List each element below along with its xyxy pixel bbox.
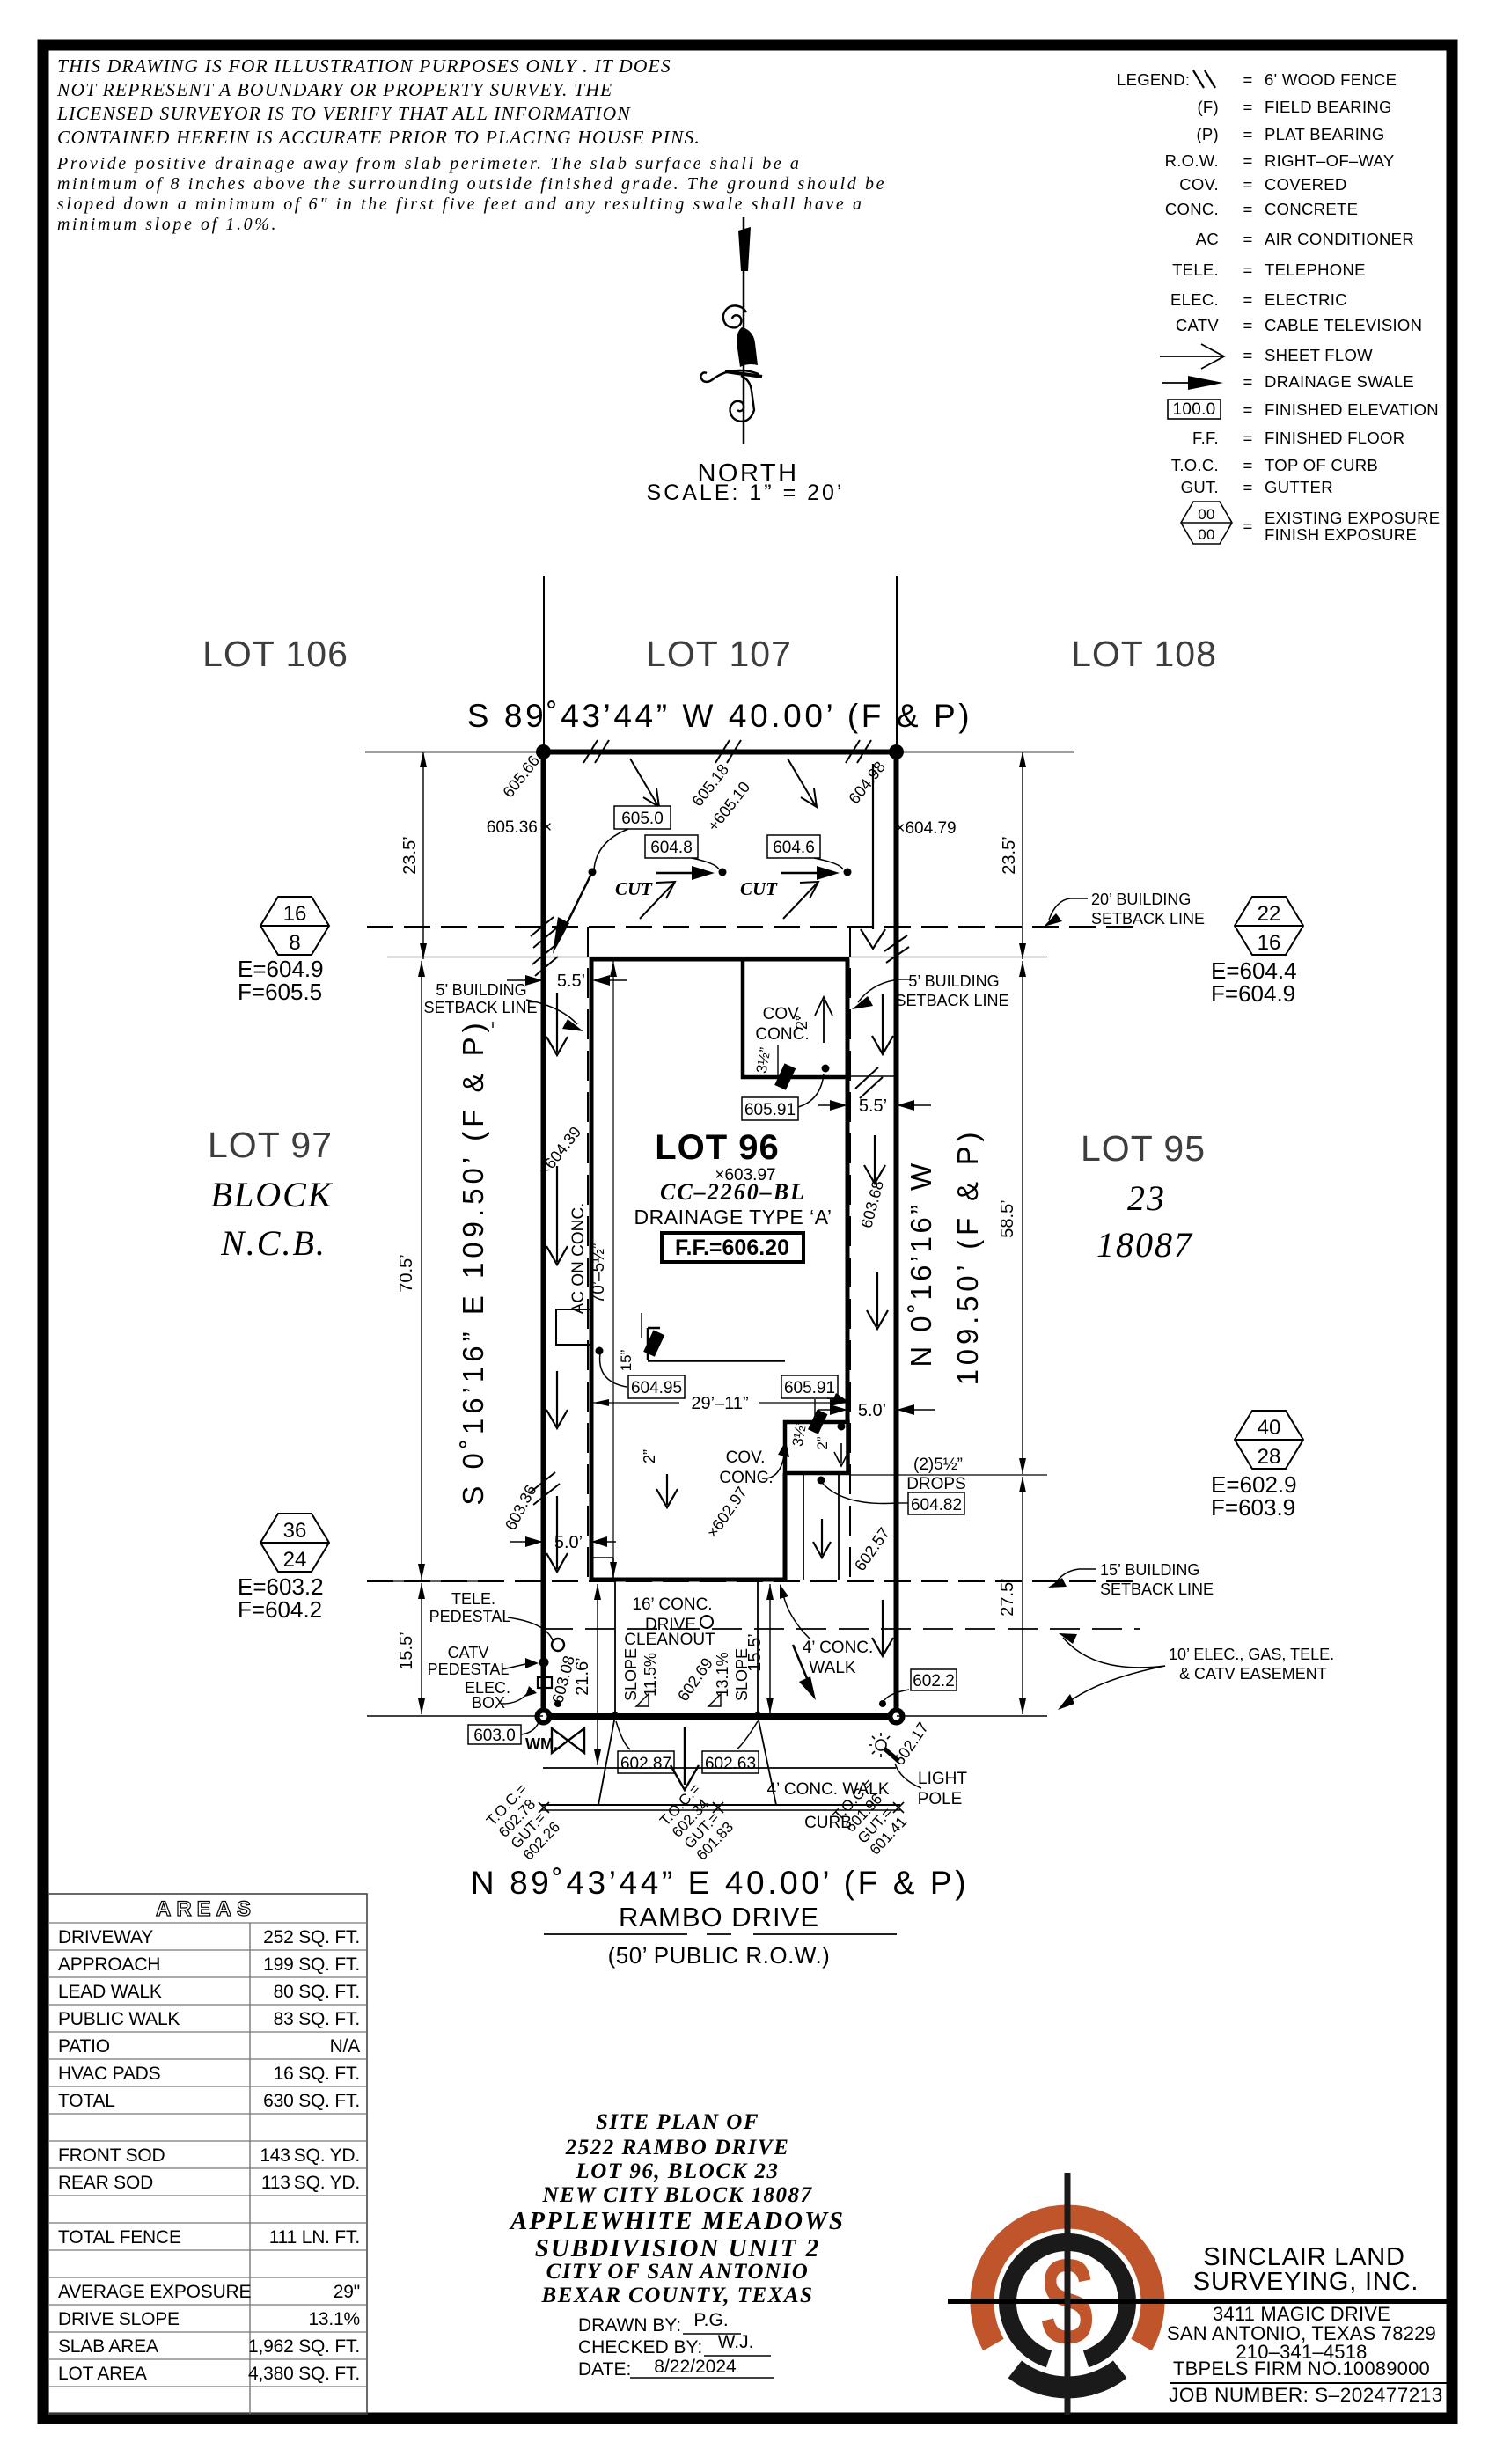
svg-text:FINISH EXPOSURE: FINISH EXPOSURE [1265,525,1417,544]
svg-text:LOT 107: LOT 107 [646,634,792,674]
svg-text:CATV: CATV [448,1644,489,1661]
svg-text:=: = [1243,70,1252,89]
svg-text:PEDESTAL: PEDESTAL [428,1661,510,1678]
svg-text:S 0˚16’16” E 109.50’ (F & P): S 0˚16’16” E 109.50’ (F & P) [457,1018,489,1505]
svg-text:COVERED: COVERED [1265,175,1347,194]
svg-text:70’–5½”: 70’–5½” [590,1243,608,1304]
svg-text:CONCRETE: CONCRETE [1265,200,1358,218]
svg-text:23.5’: 23.5’ [1000,836,1019,874]
svg-text:REAR SOD: REAR SOD [58,2173,153,2193]
svg-text:TOP OF CURB: TOP OF CURB [1265,456,1378,474]
svg-text:PUBLIC WALK: PUBLIC WALK [58,2009,180,2029]
svg-text:2522 RAMBO DRIVE: 2522 RAMBO DRIVE [565,2136,790,2160]
svg-text:R.O.W.: R.O.W. [1165,151,1219,170]
svg-text:F=604.2: F=604.2 [238,1596,322,1623]
svg-text:COV.: COV. [726,1448,766,1467]
svg-text:143 SQ. YD.: 143 SQ. YD. [260,2145,360,2166]
svg-text:NEW CITY BLOCK 18087: NEW CITY BLOCK 18087 [541,2183,812,2207]
svg-text:20’ BUILDING: 20’ BUILDING [1091,891,1191,908]
svg-text:LIGHT: LIGHT [918,1770,967,1788]
svg-text:F=604.9: F=604.9 [1211,980,1295,1007]
svg-text:AREAS: AREAS [156,1897,256,1921]
svg-text:16’ CONC.: 16’ CONC. [632,1595,712,1614]
svg-text:2”: 2” [814,1436,831,1449]
svg-text:COV.: COV. [1179,175,1219,194]
svg-text:APPROACH: APPROACH [58,1954,160,1975]
svg-text:605.91: 605.91 [784,1379,835,1397]
svg-text:602.2: 602.2 [913,1672,955,1690]
svg-text:40: 40 [1258,1416,1281,1440]
svg-text:GUT.: GUT. [1181,478,1219,496]
svg-text:1,962 SQ. FT.: 1,962 SQ. FT. [248,2336,360,2357]
svg-text:27.5’: 27.5’ [998,1578,1017,1616]
svg-text:GUTTER: GUTTER [1265,478,1333,496]
svg-text:SETBACK LINE: SETBACK LINE [1100,1580,1214,1598]
svg-text:605.0: 605.0 [621,810,664,828]
svg-text:FINISHED ELEVATION: FINISHED ELEVATION [1265,400,1439,419]
svg-text:SETBACK LINE: SETBACK LINE [423,999,537,1016]
svg-text:LOT 108: LOT 108 [1071,634,1217,674]
svg-text:minimum of 8 inches above the: minimum of 8 inches above the surroundin… [57,174,886,194]
svg-text:EXISTING EXPOSURE: EXISTING EXPOSURE [1265,509,1440,527]
svg-text:CC–2260–BL: CC–2260–BL [660,1179,806,1205]
svg-text:PEDESTAL: PEDESTAL [429,1608,511,1625]
svg-text:BOX: BOX [472,1694,505,1712]
svg-text:AVERAGE EXPOSURE: AVERAGE EXPOSURE [58,2282,252,2302]
svg-text:22: 22 [1258,902,1281,926]
svg-text:603.0: 603.0 [473,1727,516,1745]
svg-text:604.6: 604.6 [773,839,815,857]
svg-text:HVAC PADS: HVAC PADS [58,2064,161,2084]
svg-text:TELEPHONE: TELEPHONE [1265,260,1366,279]
svg-text:SCALE: 1” = 20’: SCALE: 1” = 20’ [647,480,845,505]
svg-text:=: = [1243,290,1252,309]
svg-text:AC: AC [1196,230,1219,248]
svg-text:WALK: WALK [809,1659,855,1677]
svg-text:N 0˚16’16” W: N 0˚16’16” W [905,1160,937,1367]
svg-text:00: 00 [1198,506,1215,523]
svg-text:LEAD WALK: LEAD WALK [58,1982,162,2002]
svg-text:=: = [1243,346,1252,364]
svg-text:CHECKED BY:: CHECKED BY: [578,2337,702,2358]
svg-text:LOT 95: LOT 95 [1081,1128,1206,1169]
svg-text:=: = [1243,200,1252,218]
svg-text:N 89˚43’44” E 40.00’ (F & P): N 89˚43’44” E 40.00’ (F & P) [471,1865,969,1901]
svg-text:FINISHED FLOOR: FINISHED FLOOR [1265,429,1404,447]
svg-text:DRIVE SLOPE: DRIVE SLOPE [58,2309,180,2329]
svg-text:LICENSED SURVEYOR IS TO VERIFY: LICENSED SURVEYOR IS TO VERIFY THAT ALL … [56,103,631,124]
svg-text:=: = [1243,175,1252,194]
svg-text:PATIO: PATIO [58,2036,110,2057]
svg-text:LOT AREA: LOT AREA [58,2364,147,2384]
svg-text:CABLE TELEVISION: CABLE TELEVISION [1265,316,1422,334]
svg-text:SITE PLAN OF: SITE PLAN OF [596,2110,759,2134]
svg-text:2”: 2” [641,1449,658,1463]
svg-text:5.0’: 5.0’ [858,1401,886,1420]
svg-text:11.5%: 11.5% [642,1653,659,1697]
svg-text:4,380 SQ. FT.: 4,380 SQ. FT. [248,2364,360,2384]
svg-text:CONC.: CONC. [1165,200,1219,218]
svg-text:minimum slope of 1.0%.: minimum slope of 1.0%. [57,215,278,234]
svg-text:F.F.=606.20: F.F.=606.20 [675,1236,789,1260]
svg-text:RAMBO DRIVE: RAMBO DRIVE [619,1902,819,1932]
svg-text:23: 23 [1127,1178,1166,1218]
svg-text:13.1%: 13.1% [308,2309,360,2329]
svg-text:SLAB AREA: SLAB AREA [58,2336,158,2357]
svg-text:=: = [1243,478,1252,496]
svg-text:W.J.: W.J. [718,2332,754,2352]
svg-text:CATV: CATV [1176,316,1220,334]
svg-text:N.C.B.: N.C.B. [220,1223,326,1263]
svg-text:23.5’: 23.5’ [400,836,420,874]
svg-text:FIELD BEARING: FIELD BEARING [1265,98,1392,116]
svg-text:=: = [1243,151,1252,170]
svg-text:SLOPE: SLOPE [622,1648,640,1701]
svg-text:29’–11”: 29’–11” [691,1394,748,1413]
svg-text:36: 36 [283,1519,307,1543]
svg-text:SETBACK LINE: SETBACK LINE [1091,910,1205,928]
svg-text:6' WOOD FENCE: 6' WOOD FENCE [1265,70,1397,89]
svg-text:=: = [1243,230,1252,248]
svg-text:(P): (P) [1196,125,1219,143]
svg-text:LOT 106: LOT 106 [202,634,348,674]
svg-text:DRIVEWAY: DRIVEWAY [58,1927,153,1947]
svg-text:111 LN. FT.: 111 LN. FT. [269,2227,360,2248]
svg-text:15’ BUILDING: 15’ BUILDING [1100,1561,1199,1579]
svg-text:F.F.: F.F. [1192,429,1219,447]
svg-text:70.5’: 70.5’ [397,1254,416,1292]
svg-text:ELEC.: ELEC. [1170,290,1219,309]
svg-text:CITY OF SAN ANTONIO: CITY OF SAN ANTONIO [546,2260,810,2284]
svg-text:DATE:: DATE: [578,2359,631,2380]
svg-text:(F): (F) [1197,98,1219,116]
svg-text:29": 29" [334,2282,360,2302]
svg-text:4’ CONC.: 4’ CONC. [803,1639,874,1657]
svg-text:24: 24 [283,1548,307,1572]
svg-text:THIS DRAWING IS FOR ILLUSTRATI: THIS DRAWING IS FOR ILLUSTRATION PURPOSE… [57,55,671,77]
svg-text:=: = [1243,372,1252,391]
svg-text:=: = [1243,260,1252,279]
svg-text:18087: 18087 [1096,1225,1193,1265]
svg-text:F=605.5: F=605.5 [238,979,322,1005]
svg-text:252 SQ. FT.: 252 SQ. FT. [263,1927,360,1947]
svg-text:LOT 97: LOT 97 [208,1125,333,1165]
svg-text:100.0: 100.0 [1172,400,1215,419]
svg-text:604.8: 604.8 [650,839,693,857]
svg-text:FRONT SOD: FRONT SOD [58,2145,165,2166]
svg-text:CUT: CUT [615,878,653,899]
svg-text:BEXAR COUNTY, TEXAS: BEXAR COUNTY, TEXAS [541,2284,814,2307]
svg-text:605.36 ×: 605.36 × [487,818,553,837]
svg-text:SUBDIVISION UNIT 2: SUBDIVISION UNIT 2 [535,2234,820,2262]
svg-text:13.1%: 13.1% [714,1652,731,1697]
svg-text:AC ON CONC.: AC ON CONC. [569,1203,588,1315]
svg-text:15.5’: 15.5’ [745,1633,765,1671]
svg-text:LEGEND:: LEGEND: [1117,70,1190,89]
svg-text:P.G.: P.G. [693,2310,728,2330]
svg-text:RIGHT–OF–WAY: RIGHT–OF–WAY [1265,151,1395,170]
svg-text:DRAINAGE TYPE ‘A’: DRAINAGE TYPE ‘A’ [634,1206,832,1228]
svg-text:5.5’: 5.5’ [557,972,585,991]
svg-text:=: = [1243,400,1252,419]
svg-text:SETBACK LINE: SETBACK LINE [895,992,1008,1009]
svg-text:199 SQ. FT.: 199 SQ. FT. [263,1954,360,1975]
svg-text:TELE.: TELE. [451,1590,495,1608]
svg-text:POLE: POLE [918,1790,963,1808]
svg-text:21.6’: 21.6’ [573,1657,592,1695]
svg-text:604.95: 604.95 [631,1379,682,1397]
svg-text:DRAINAGE SWALE: DRAINAGE SWALE [1265,372,1414,391]
svg-text:16: 16 [283,902,307,926]
svg-text:5.0’: 5.0’ [554,1533,583,1552]
svg-text:00: 00 [1198,526,1215,543]
svg-text:WM.: WM. [525,1735,558,1753]
svg-text:PLAT BEARING: PLAT BEARING [1265,125,1385,143]
svg-text:AIR CONDITIONER: AIR CONDITIONER [1265,230,1414,248]
svg-text:N/A: N/A [330,2036,361,2057]
svg-text:ELECTRIC: ELECTRIC [1265,290,1347,309]
svg-text:F=603.9: F=603.9 [1211,1494,1295,1521]
svg-text:604.82: 604.82 [911,1496,962,1514]
svg-text:TBPELS FIRM NO.10089000: TBPELS FIRM NO.10089000 [1173,2358,1430,2380]
svg-text:(50’ PUBLIC R.O.W.): (50’ PUBLIC R.O.W.) [608,1942,831,1969]
svg-text:15”: 15” [618,1349,634,1371]
svg-text:DROPS: DROPS [906,1475,966,1493]
svg-text:630 SQ. FT.: 630 SQ. FT. [263,2091,360,2111]
svg-text:LOT 96: LOT 96 [655,1128,780,1167]
svg-text:=: = [1243,456,1252,474]
svg-text:28: 28 [1258,1445,1281,1469]
svg-text:×604.79: ×604.79 [895,819,956,838]
svg-text:CLEANOUT: CLEANOUT [624,1631,715,1649]
svg-text:=: = [1243,429,1252,447]
svg-text:602.87: 602.87 [620,1755,671,1773]
svg-text:BLOCK: BLOCK [211,1175,334,1214]
svg-text:602.63: 602.63 [705,1755,756,1773]
svg-text:16: 16 [1258,931,1281,955]
svg-text:TOTAL FENCE: TOTAL FENCE [58,2227,181,2248]
svg-text:Provide positive drainage away: Provide positive drainage away from slab… [56,154,802,173]
svg-text:8/22/2024: 8/22/2024 [654,2357,737,2377]
svg-text:DRAWN BY:: DRAWN BY: [578,2315,681,2336]
svg-text:CONTAINED HEREIN IS ACCURATE P: CONTAINED HEREIN IS ACCURATE PRIOR TO PL… [57,127,700,148]
svg-text:TELE.: TELE. [1172,260,1219,279]
svg-text:& CATV EASEMENT: & CATV EASEMENT [1179,1665,1327,1683]
svg-text:SHEET FLOW: SHEET FLOW [1265,346,1373,364]
svg-text:sloped down a minimum of 6" in: sloped down a minimum of 6" in the first… [57,194,864,214]
svg-text:10’ ELEC., GAS, TELE.: 10’ ELEC., GAS, TELE. [1169,1646,1334,1663]
svg-text:T.O.C.: T.O.C. [1171,456,1219,474]
svg-text:80 SQ. FT.: 80 SQ. FT. [274,1982,360,2002]
svg-text:605.91: 605.91 [744,1101,796,1119]
svg-text:5.5’: 5.5’ [859,1096,887,1116]
svg-text:=: = [1243,98,1252,116]
svg-text:NOT REPRESENT A BOUNDARY OR PR: NOT REPRESENT A BOUNDARY OR PROPERTY SUR… [56,79,612,100]
svg-text:JOB NUMBER: S–202477213: JOB NUMBER: S–202477213 [1169,2384,1443,2406]
svg-text:=: = [1243,517,1252,535]
svg-text:109.50’ (F & P): 109.50’ (F & P) [951,1128,984,1386]
svg-text:=: = [1243,316,1252,334]
svg-text:LOT 96, BLOCK 23: LOT 96, BLOCK 23 [576,2160,780,2183]
svg-text:TOTAL: TOTAL [58,2091,115,2111]
svg-text:113 SQ. YD.: 113 SQ. YD. [261,2173,360,2193]
svg-text:(2)5½”: (2)5½” [913,1456,963,1474]
svg-text:APPLEWHITE MEADOWS: APPLEWHITE MEADOWS [509,2207,845,2235]
svg-text:2”: 2” [793,1016,810,1030]
svg-text:16 SQ. FT.: 16 SQ. FT. [274,2064,360,2084]
svg-text:8: 8 [289,931,300,955]
svg-text:83 SQ. FT.: 83 SQ. FT. [274,2009,360,2029]
svg-text:5’ BUILDING: 5’ BUILDING [436,981,526,999]
svg-text:=: = [1243,125,1252,143]
svg-text:SURVEYING, INC.: SURVEYING, INC. [1193,2268,1419,2296]
svg-text:15.5’: 15.5’ [397,1632,416,1669]
svg-text:58.5’: 58.5’ [998,1199,1017,1237]
svg-text:5’ BUILDING: 5’ BUILDING [908,972,999,990]
svg-text:CUT: CUT [740,878,778,899]
